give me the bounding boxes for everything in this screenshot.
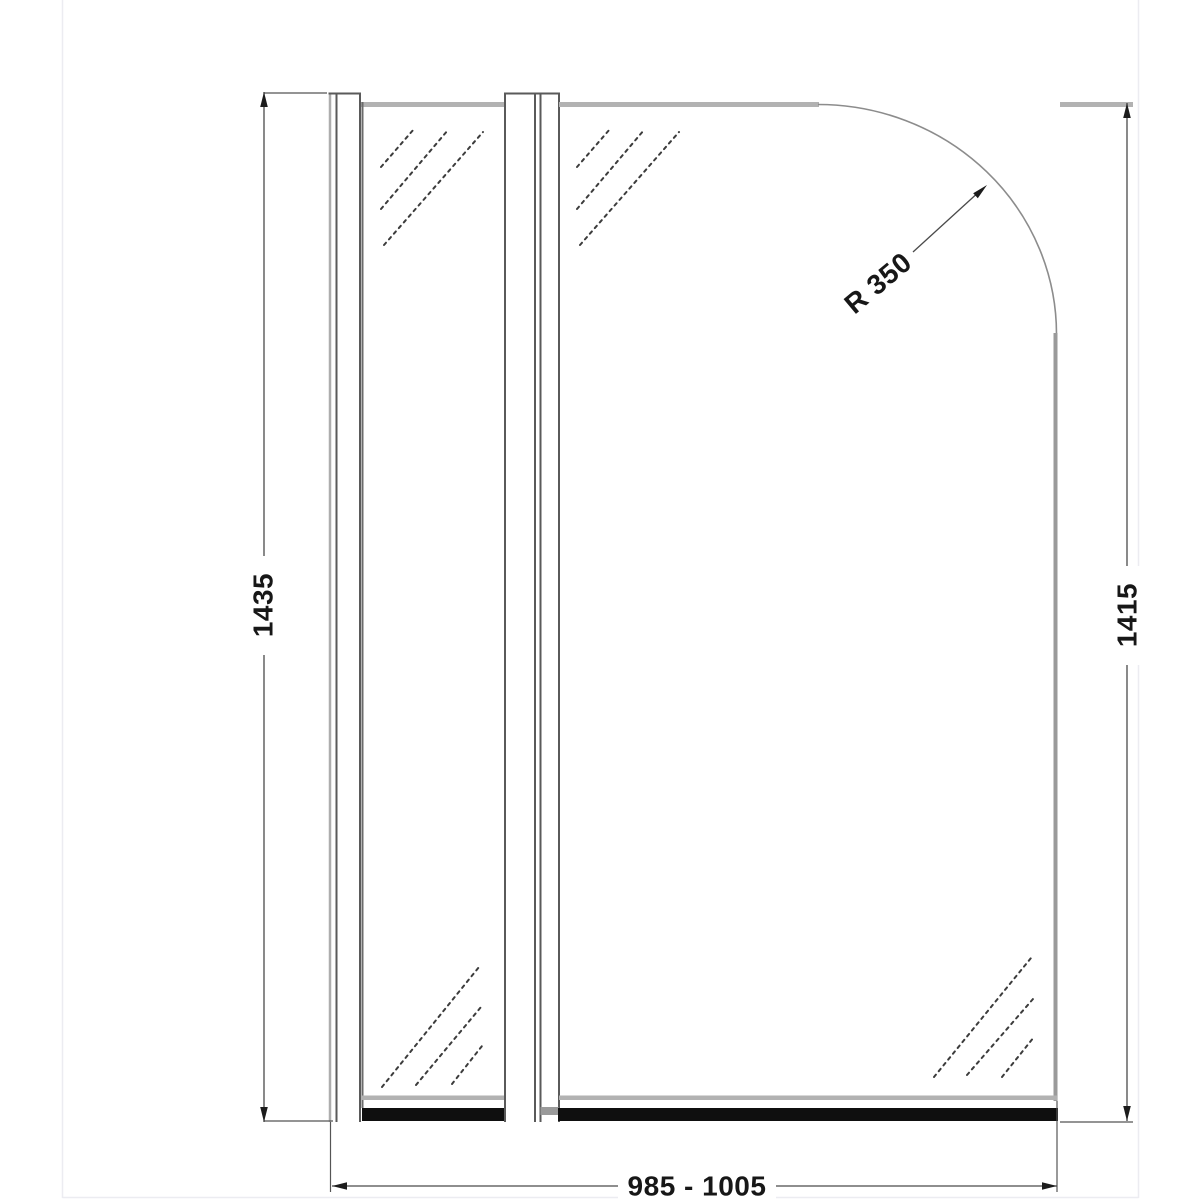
- curved-glass-panel: [559, 102, 1058, 1101]
- arrow-up-right-icon: [973, 185, 987, 198]
- hinge-profile: [504, 93, 560, 1122]
- arrow-down-icon: [260, 1107, 268, 1122]
- curved-panel-top-edge: [559, 102, 819, 107]
- arrow-right-icon: [1042, 1182, 1057, 1189]
- technical-drawing: 1435 1415 985 - 1005 R 350: [0, 0, 1200, 1200]
- dimension-label-height-right: 1415: [1112, 583, 1143, 647]
- radius-annotation: R 350: [838, 185, 987, 320]
- glass-hatch-mark: [381, 129, 414, 167]
- glass-hatch-marks-bottom-right: [934, 958, 1034, 1077]
- wall-profile: [329, 93, 362, 1122]
- arrow-down-icon: [1123, 1106, 1131, 1121]
- image-frame-border: [63, 0, 1139, 1198]
- curved-panel-bottom-glass-edge: [559, 1096, 1057, 1101]
- bottom-seal: [362, 1108, 1058, 1121]
- fixed-panel-bottom-glass-edge: [362, 1096, 504, 1101]
- glass-hatch-marks-bottom-left: [382, 967, 482, 1087]
- glass-hatch-mark: [381, 130, 448, 209]
- drawing-canvas: 1435 1415 985 - 1005 R 350: [0, 0, 1200, 1200]
- glass-hatch-marks-top-middle: [577, 129, 679, 245]
- glass-hatch-mark: [452, 1046, 482, 1084]
- dimension-height-right: 1415: [1060, 102, 1146, 1122]
- glass-hatch-marks-top-left: [381, 129, 483, 245]
- dimension-label-height-left: 1435: [248, 573, 279, 637]
- glass-hatch-mark: [416, 1007, 481, 1085]
- extension-line-top-right: [1060, 102, 1133, 107]
- glass-hatch-mark: [1002, 1037, 1034, 1077]
- hinge-profile-bottom-channel: [541, 1107, 559, 1115]
- fixed-glass-panel: [361, 102, 504, 1108]
- arrow-left-icon: [332, 1182, 347, 1189]
- glass-hatch-mark: [577, 130, 644, 209]
- bottom-seal-right-segment: [558, 1108, 1058, 1121]
- arrow-up-icon: [260, 92, 268, 107]
- fixed-panel-top-edge: [361, 102, 504, 107]
- glass-hatch-mark: [967, 999, 1033, 1075]
- glass-hatch-mark: [580, 132, 679, 245]
- glass-hatch-mark: [577, 129, 610, 167]
- radius-label: R 350: [838, 246, 917, 319]
- curved-panel-right-edge: [1054, 333, 1058, 1101]
- radius-leader-line: [913, 190, 981, 252]
- bottom-seal-left-segment: [362, 1108, 504, 1121]
- dimension-height-left: 1435: [245, 92, 333, 1122]
- glass-hatch-mark: [384, 132, 483, 245]
- dimension-label-width-bottom: 985 - 1005: [628, 1171, 767, 1200]
